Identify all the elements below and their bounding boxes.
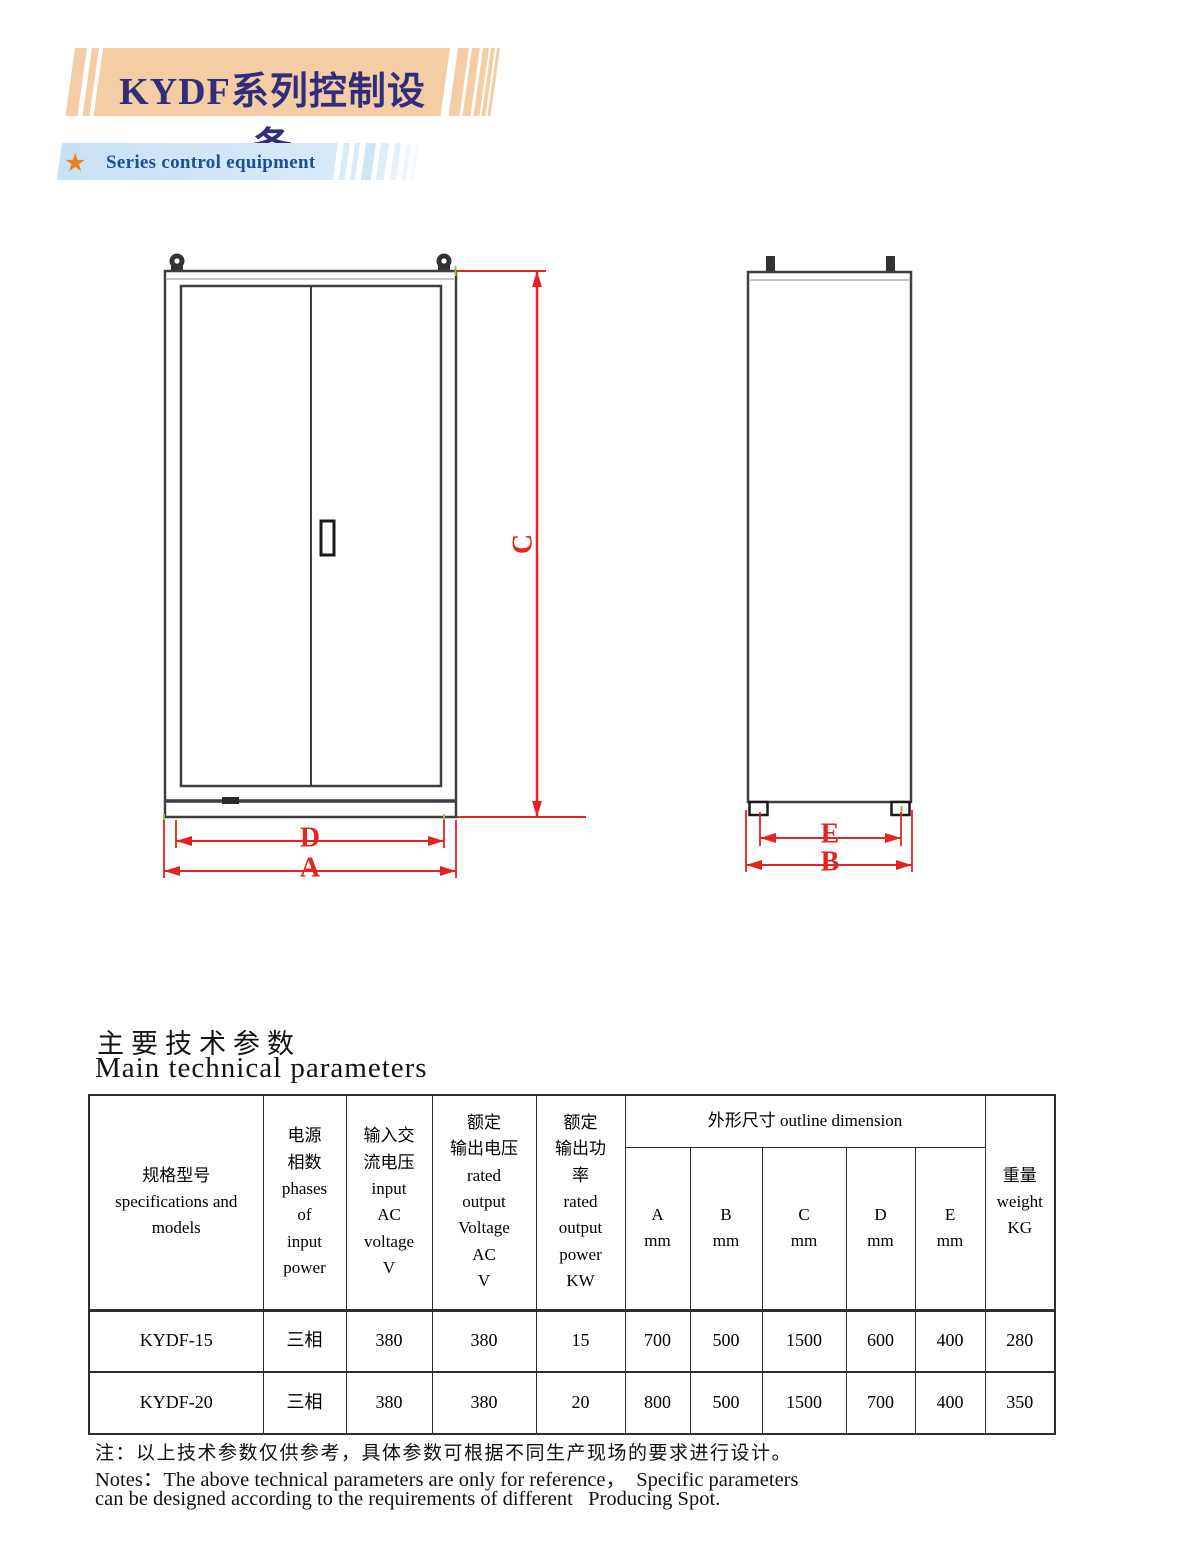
col-header-dim-d: D mm <box>846 1147 915 1310</box>
cell-phases: 三相 <box>263 1310 346 1372</box>
cell-dim-b: 500 <box>690 1310 762 1372</box>
cell-input-voltage: 380 <box>346 1310 432 1372</box>
cabinet-foot <box>750 802 768 815</box>
cell-dim-c: 1500 <box>762 1372 846 1434</box>
cell-weight: 350 <box>985 1372 1055 1434</box>
table-row: KYDF-15 三相 380 380 15 700 500 1500 600 4… <box>89 1310 1055 1372</box>
col-header-outline-dimension: 外形尺寸 outline dimension <box>625 1095 985 1147</box>
col-header-dim-b: B mm <box>690 1147 762 1310</box>
side-view-drawing <box>748 256 911 815</box>
col-header-specs: 规格型号 specifications and models <box>89 1095 263 1310</box>
note-line-en-2: can be designed according to the require… <box>95 1488 720 1511</box>
col-header-phases: 电源 相数 phases of input power <box>263 1095 346 1310</box>
dim-label-c: C <box>508 534 539 554</box>
col-header-dim-e: E mm <box>915 1147 985 1310</box>
cell-phases: 三相 <box>263 1372 346 1434</box>
cell-model: KYDF-15 <box>89 1310 263 1372</box>
lifting-eye-hole <box>441 258 446 263</box>
cabinet-side-body <box>748 272 911 802</box>
col-header-dim-a: A mm <box>625 1147 690 1310</box>
plinth-latch <box>222 797 239 804</box>
section-title-en: Main technical parameters <box>95 1052 428 1085</box>
col-header-output-power: 额定 输出功 率 rated output power KW <box>536 1095 625 1310</box>
cell-dim-e: 400 <box>915 1310 985 1372</box>
parameters-table: 规格型号 specifications and models 电源 相数 pha… <box>88 1094 1056 1435</box>
front-view-drawing <box>165 254 456 818</box>
cell-dim-d: 600 <box>846 1310 915 1372</box>
col-header-weight: 重量 weight KG <box>985 1095 1055 1310</box>
cell-dim-b: 500 <box>690 1372 762 1434</box>
col-header-output-voltage: 额定 输出电压 rated output Voltage AC V <box>432 1095 536 1310</box>
cell-dim-a: 700 <box>625 1310 690 1372</box>
dimension-lines-side: E B <box>746 810 912 878</box>
cell-output-power: 15 <box>536 1310 625 1372</box>
col-header-input-voltage: 输入交 流电压 input AC voltage V <box>346 1095 432 1310</box>
technical-drawing: C D A E <box>0 0 1200 930</box>
lifting-eye-side <box>766 256 775 273</box>
dim-label-b: B <box>821 847 840 878</box>
cell-output-voltage: 380 <box>432 1310 536 1372</box>
cell-dim-d: 700 <box>846 1372 915 1434</box>
cell-dim-e: 400 <box>915 1372 985 1434</box>
dim-label-a: A <box>300 853 321 884</box>
cell-weight: 280 <box>985 1310 1055 1372</box>
cell-dim-c: 1500 <box>762 1310 846 1372</box>
lifting-eye-hole <box>174 258 179 263</box>
door-handle <box>321 521 334 555</box>
col-header-dim-c: C mm <box>762 1147 846 1310</box>
lifting-eye-side <box>886 256 895 273</box>
cell-output-power: 20 <box>536 1372 625 1434</box>
table-row: KYDF-20 三相 380 380 20 800 500 1500 700 4… <box>89 1372 1055 1434</box>
dim-label-d: D <box>300 823 320 854</box>
cell-dim-a: 800 <box>625 1372 690 1434</box>
note-line-zh: 注：以上技术参数仅供参考，具体参数可根据不同生产现场的要求进行设计。 <box>95 1438 792 1465</box>
dim-label-e: E <box>821 819 840 850</box>
cell-model: KYDF-20 <box>89 1372 263 1434</box>
dimension-lines-front: C D A <box>164 271 586 884</box>
catalog-page: KYDF系列控制设备 ★ Series control equipment <box>0 0 1200 1550</box>
cell-output-voltage: 380 <box>432 1372 536 1434</box>
cell-input-voltage: 380 <box>346 1372 432 1434</box>
